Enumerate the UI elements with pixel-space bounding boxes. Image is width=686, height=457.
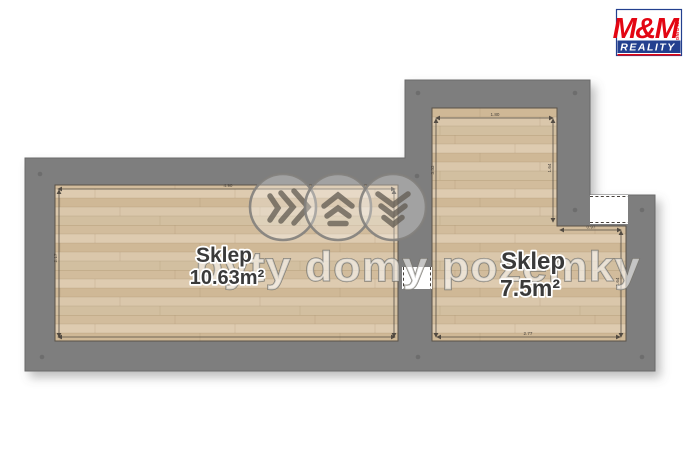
door-opening-right — [590, 195, 628, 224]
dim-label: 1.80 — [491, 112, 500, 117]
room-label-right: Sklep 7.5m² — [500, 248, 565, 301]
watermark-chevrons-down-icon — [360, 174, 426, 240]
dim-label: 4.90 — [224, 183, 233, 188]
dim-label: 2.77 — [524, 331, 533, 336]
dim-label: 3.33 — [430, 165, 435, 174]
floorplan-canvas: 4.90 2.17 1.80 3.33 1.64 0.97 1.64 2.77 — [0, 0, 686, 457]
logo-title: M&M — [613, 13, 680, 45]
dim-label: 2.17 — [53, 253, 58, 262]
room-area: 10.63m² — [190, 267, 265, 289]
dim-label: 0.97 — [587, 225, 596, 230]
floorplan-svg: 4.90 2.17 1.80 3.33 1.64 0.97 1.64 2.77 — [0, 0, 686, 457]
room-name: Sklep — [501, 248, 565, 275]
room-name: Sklep — [196, 244, 252, 267]
logo-subtitle: REALITY — [620, 42, 675, 54]
logo-holding-text: HOLDING — [675, 18, 680, 41]
dim-label: 1.64 — [547, 163, 552, 172]
mm-reality-logo: M&M HOLDING REALITY — [613, 10, 682, 56]
room-area: 7.5m² — [500, 275, 560, 301]
